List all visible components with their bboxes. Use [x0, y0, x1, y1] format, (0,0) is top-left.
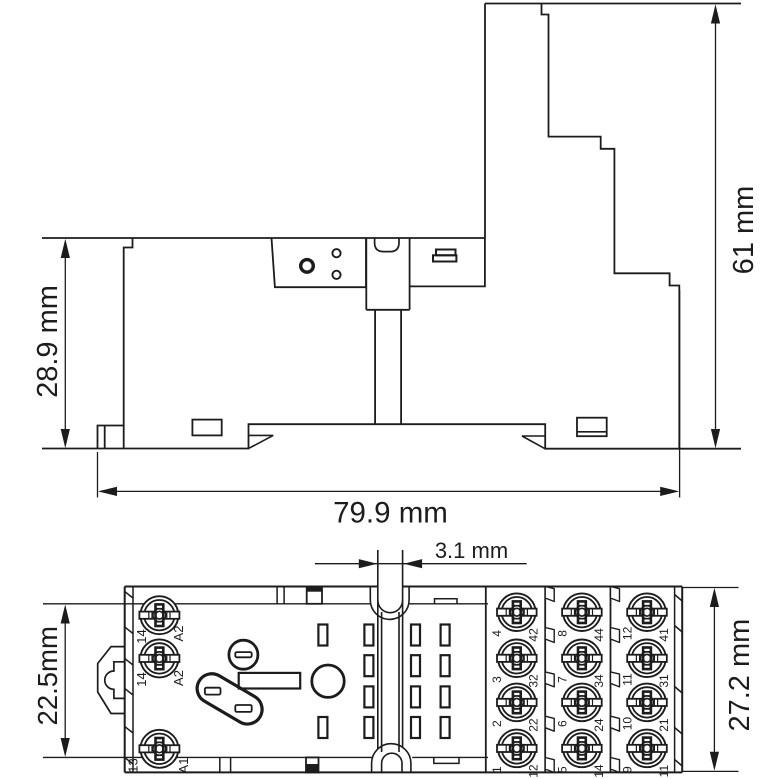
- svg-text:A1: A1: [176, 758, 191, 774]
- svg-text:41: 41: [657, 628, 671, 642]
- svg-text:79.9 mm: 79.9 mm: [333, 497, 448, 530]
- svg-text:4: 4: [490, 630, 504, 637]
- svg-text:A2: A2: [171, 670, 186, 686]
- svg-text:5: 5: [555, 766, 569, 773]
- svg-text:61 mm: 61 mm: [728, 186, 760, 275]
- svg-text:22.5mm: 22.5mm: [32, 626, 63, 725]
- svg-text:2: 2: [490, 720, 504, 727]
- svg-text:7: 7: [555, 676, 569, 683]
- svg-text:3: 3: [490, 676, 504, 683]
- svg-text:1: 1: [490, 766, 504, 773]
- svg-text:14: 14: [134, 672, 149, 686]
- svg-text:11: 11: [620, 673, 634, 686]
- svg-text:32: 32: [527, 674, 541, 688]
- svg-text:31: 31: [657, 674, 671, 688]
- svg-text:13: 13: [126, 758, 141, 772]
- svg-text:10: 10: [620, 717, 634, 731]
- svg-text:3.1 mm: 3.1 mm: [435, 538, 508, 563]
- svg-text:11: 11: [657, 765, 671, 778]
- svg-text:27.2 mm: 27.2 mm: [724, 619, 756, 732]
- svg-text:9: 9: [620, 766, 634, 773]
- svg-text:42: 42: [527, 628, 541, 642]
- svg-text:8: 8: [555, 630, 569, 637]
- svg-text:28.9 mm: 28.9 mm: [32, 285, 64, 398]
- svg-text:22: 22: [527, 718, 541, 732]
- svg-text:12: 12: [620, 626, 634, 640]
- svg-text:34: 34: [592, 674, 606, 688]
- svg-text:14: 14: [592, 764, 606, 778]
- svg-text:21: 21: [657, 718, 671, 732]
- svg-text:6: 6: [555, 720, 569, 727]
- svg-text:14: 14: [134, 629, 149, 643]
- svg-text:44: 44: [592, 628, 606, 642]
- svg-text:12: 12: [527, 764, 541, 778]
- svg-text:A2: A2: [171, 626, 186, 642]
- svg-text:24: 24: [592, 718, 606, 732]
